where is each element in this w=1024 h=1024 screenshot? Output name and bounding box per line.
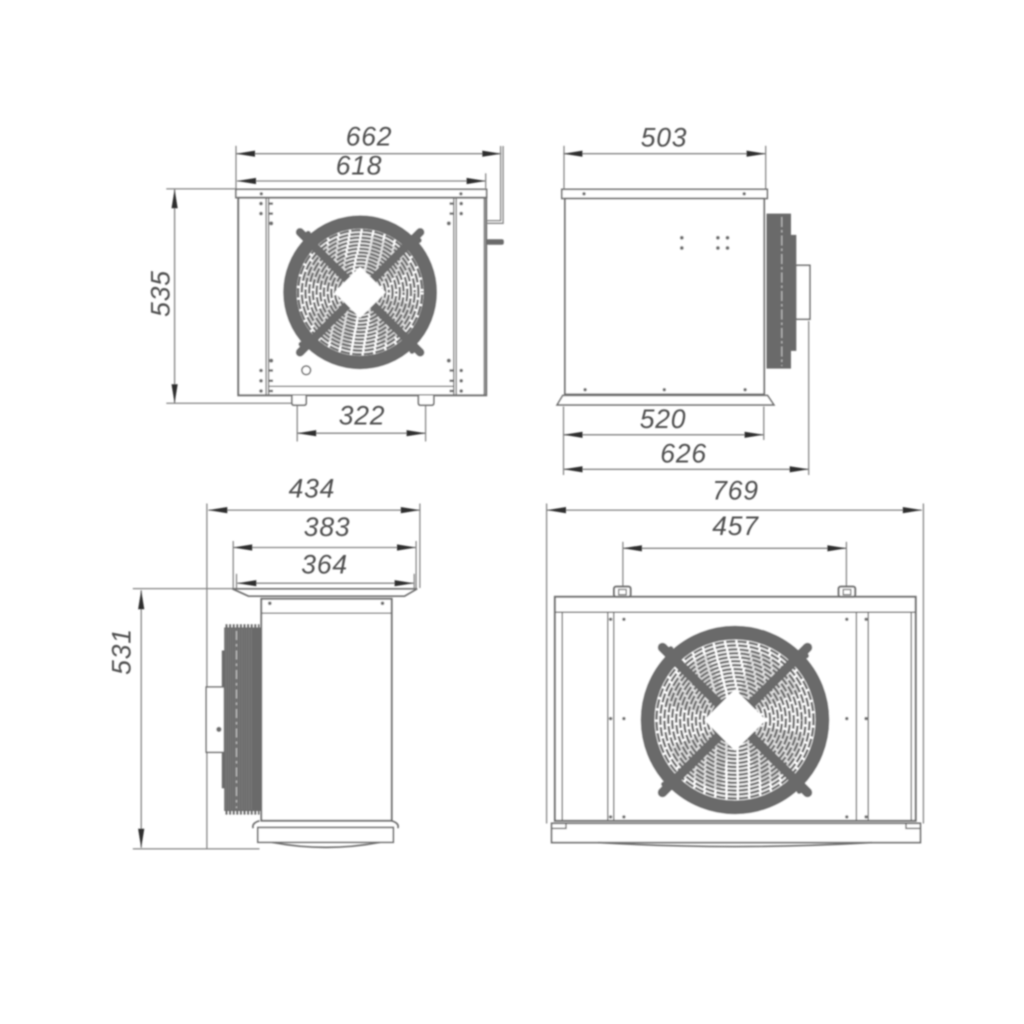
svg-text:364: 364 bbox=[301, 550, 348, 580]
svg-text:626: 626 bbox=[660, 439, 707, 469]
svg-text:769: 769 bbox=[712, 476, 759, 506]
svg-text:520: 520 bbox=[640, 404, 687, 434]
svg-text:531: 531 bbox=[107, 628, 137, 675]
svg-text:457: 457 bbox=[712, 511, 759, 541]
svg-text:618: 618 bbox=[336, 151, 383, 181]
svg-text:383: 383 bbox=[304, 512, 351, 542]
svg-text:535: 535 bbox=[146, 270, 176, 317]
svg-text:662: 662 bbox=[346, 122, 393, 152]
svg-text:322: 322 bbox=[339, 401, 386, 431]
svg-text:503: 503 bbox=[641, 123, 688, 153]
svg-text:434: 434 bbox=[289, 474, 336, 504]
